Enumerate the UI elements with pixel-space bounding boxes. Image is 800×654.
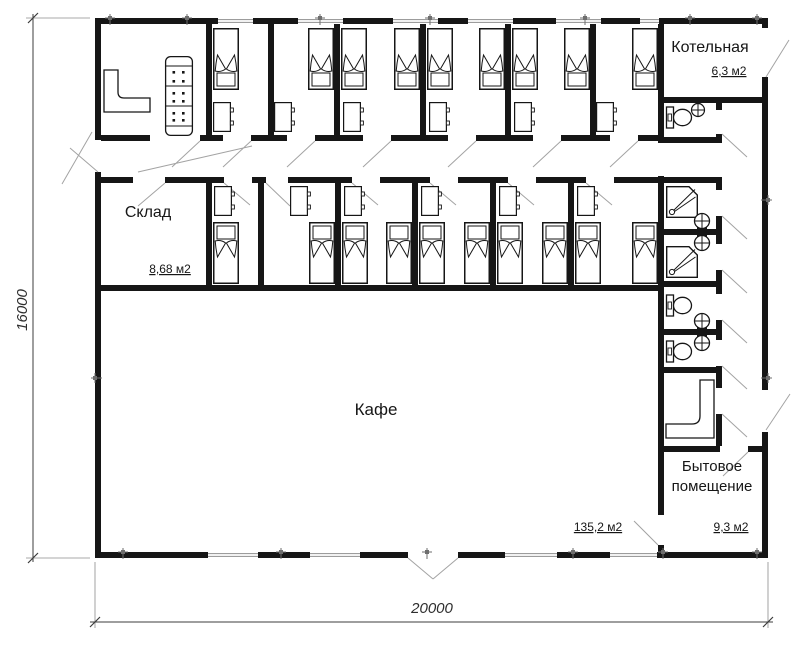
window [610, 552, 657, 558]
room-label-utility-line1: Бытовое [682, 458, 742, 475]
shower-icon [667, 247, 698, 278]
toilet-icon [667, 341, 692, 362]
witness-lines [26, 18, 90, 558]
shower-icon [667, 187, 698, 218]
bedrooms-middle-row [214, 187, 658, 284]
bed-icon [214, 29, 239, 90]
room-label-boiler: Котельная [671, 39, 748, 56]
bed-icon [465, 223, 490, 284]
room-area-boiler: 6,3 м2 [712, 64, 747, 78]
wardrobe-icon [500, 187, 520, 216]
bed-icon [309, 29, 334, 90]
floor-plan: 16000 20000 Котельная 6,3 м2 Склад 8,68 … [0, 0, 800, 654]
bed-icon [565, 29, 590, 90]
bed-icon [387, 223, 412, 284]
wardrobe-icon [215, 187, 235, 216]
bed-icon [633, 29, 658, 90]
wardrobe-icon [515, 103, 535, 132]
bed-icon [633, 223, 658, 284]
room-area-storage: 8,68 м2 [149, 262, 191, 276]
wardrobe-icon [422, 187, 442, 216]
room-label-utility-line2: помещение [672, 478, 753, 495]
bed-icon [480, 29, 505, 90]
window [505, 552, 557, 558]
reception-desk-icon [104, 70, 150, 112]
sofa-icon [166, 57, 193, 136]
dimension-width-label: 20000 [410, 600, 453, 617]
bed-icon [428, 29, 453, 90]
bed-icon [576, 223, 601, 284]
wardrobe-icon [345, 187, 365, 216]
bed-icon [395, 29, 420, 90]
window [556, 18, 601, 24]
wardrobe-icon [275, 103, 295, 132]
wardrobe-icon [214, 103, 234, 132]
wardrobe-icon [291, 187, 311, 216]
witness-lines [95, 562, 768, 628]
room-area-utility: 9,3 м2 [714, 520, 749, 534]
toilet-icon [667, 295, 692, 316]
bed-icon [513, 29, 538, 90]
wardrobe-icon [597, 103, 617, 132]
wardrobe-icon [430, 103, 450, 132]
counter-icon [666, 380, 714, 438]
bed-icon [214, 223, 239, 284]
window [468, 18, 513, 24]
room-label-storage: Склад [125, 204, 172, 221]
bed-icon [310, 223, 335, 284]
toilet-icon [667, 107, 692, 128]
bed-icon [543, 223, 568, 284]
bed-icon [342, 29, 367, 90]
window [310, 552, 360, 558]
bed-icon [343, 223, 368, 284]
sanitary-block [666, 101, 714, 439]
wall-marker-icon [422, 548, 432, 559]
bed-icon [420, 223, 445, 284]
wardrobe-icon [578, 187, 598, 216]
dimension-bottom: 20000 [90, 562, 773, 628]
bed-icon [498, 223, 523, 284]
window [218, 18, 253, 24]
reception-room [104, 57, 192, 136]
dimension-left: 16000 [14, 13, 90, 563]
room-area-cafe: 135,2 м2 [574, 520, 623, 534]
window [208, 552, 258, 558]
window [640, 18, 659, 24]
dimension-height-label: 16000 [14, 288, 31, 330]
room-label-cafe: Кафе [355, 400, 398, 419]
wardrobe-icon [344, 103, 364, 132]
floor-plan-page: 16000 20000 Котельная 6,3 м2 Склад 8,68 … [0, 0, 800, 654]
